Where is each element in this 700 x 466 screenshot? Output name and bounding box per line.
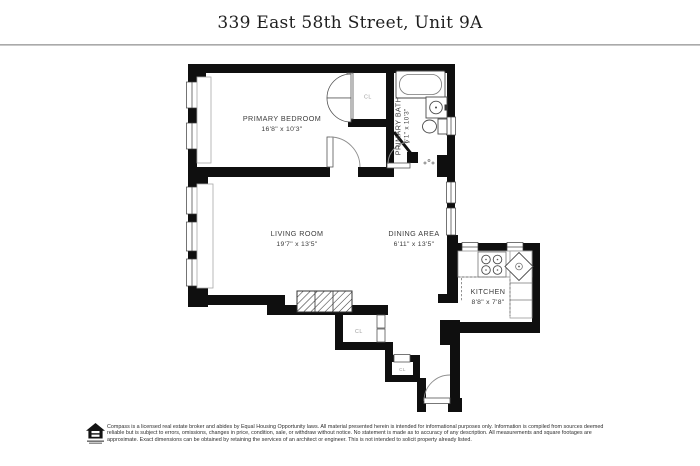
bath-sink	[426, 97, 447, 118]
label-primary-bedroom: PRIMARY BEDROOM	[243, 114, 321, 123]
label-kitchen: KITCHEN	[471, 287, 506, 296]
dims-primary-bedroom: 16'8" x 10'3"	[261, 126, 302, 133]
label-primary-bath: PRIMARY BATH	[394, 97, 403, 156]
equal-housing-logo	[86, 423, 105, 445]
dims-primary-bath: 6'1" x 10'3"	[404, 108, 411, 143]
bathtub	[396, 71, 445, 98]
floorplan-page: 339 East 58th Street, Unit 9A	[0, 0, 700, 466]
dims-kitchen: 8'8" x 7'8"	[471, 299, 504, 306]
label-closet-foyer-small: CL	[399, 367, 406, 372]
bedroom-closet-doors	[327, 73, 353, 122]
walls	[188, 64, 540, 412]
entry-door	[424, 375, 450, 404]
label-dining-area: DINING AREA	[388, 229, 439, 238]
disclaimer-text: Compass is a licensed real estate broker…	[107, 424, 613, 443]
label-living-room: LIVING ROOM	[271, 229, 324, 238]
label-closet-bedroom: CL	[364, 95, 372, 101]
floorplan-drawing: PRIMARY BEDROOM 16'8" x 10'3" PRIMARY BA…	[0, 0, 700, 466]
foyer-closet-doors	[377, 315, 410, 362]
dims-dining-area: 6'11" x 13'5"	[394, 241, 435, 248]
label-closet-foyer-large: CL	[355, 329, 363, 335]
ceiling-hatch	[297, 291, 352, 312]
dims-living-room: 19'7" x 13'5"	[276, 241, 317, 248]
toilet	[423, 119, 448, 134]
bedroom-door	[327, 137, 360, 167]
